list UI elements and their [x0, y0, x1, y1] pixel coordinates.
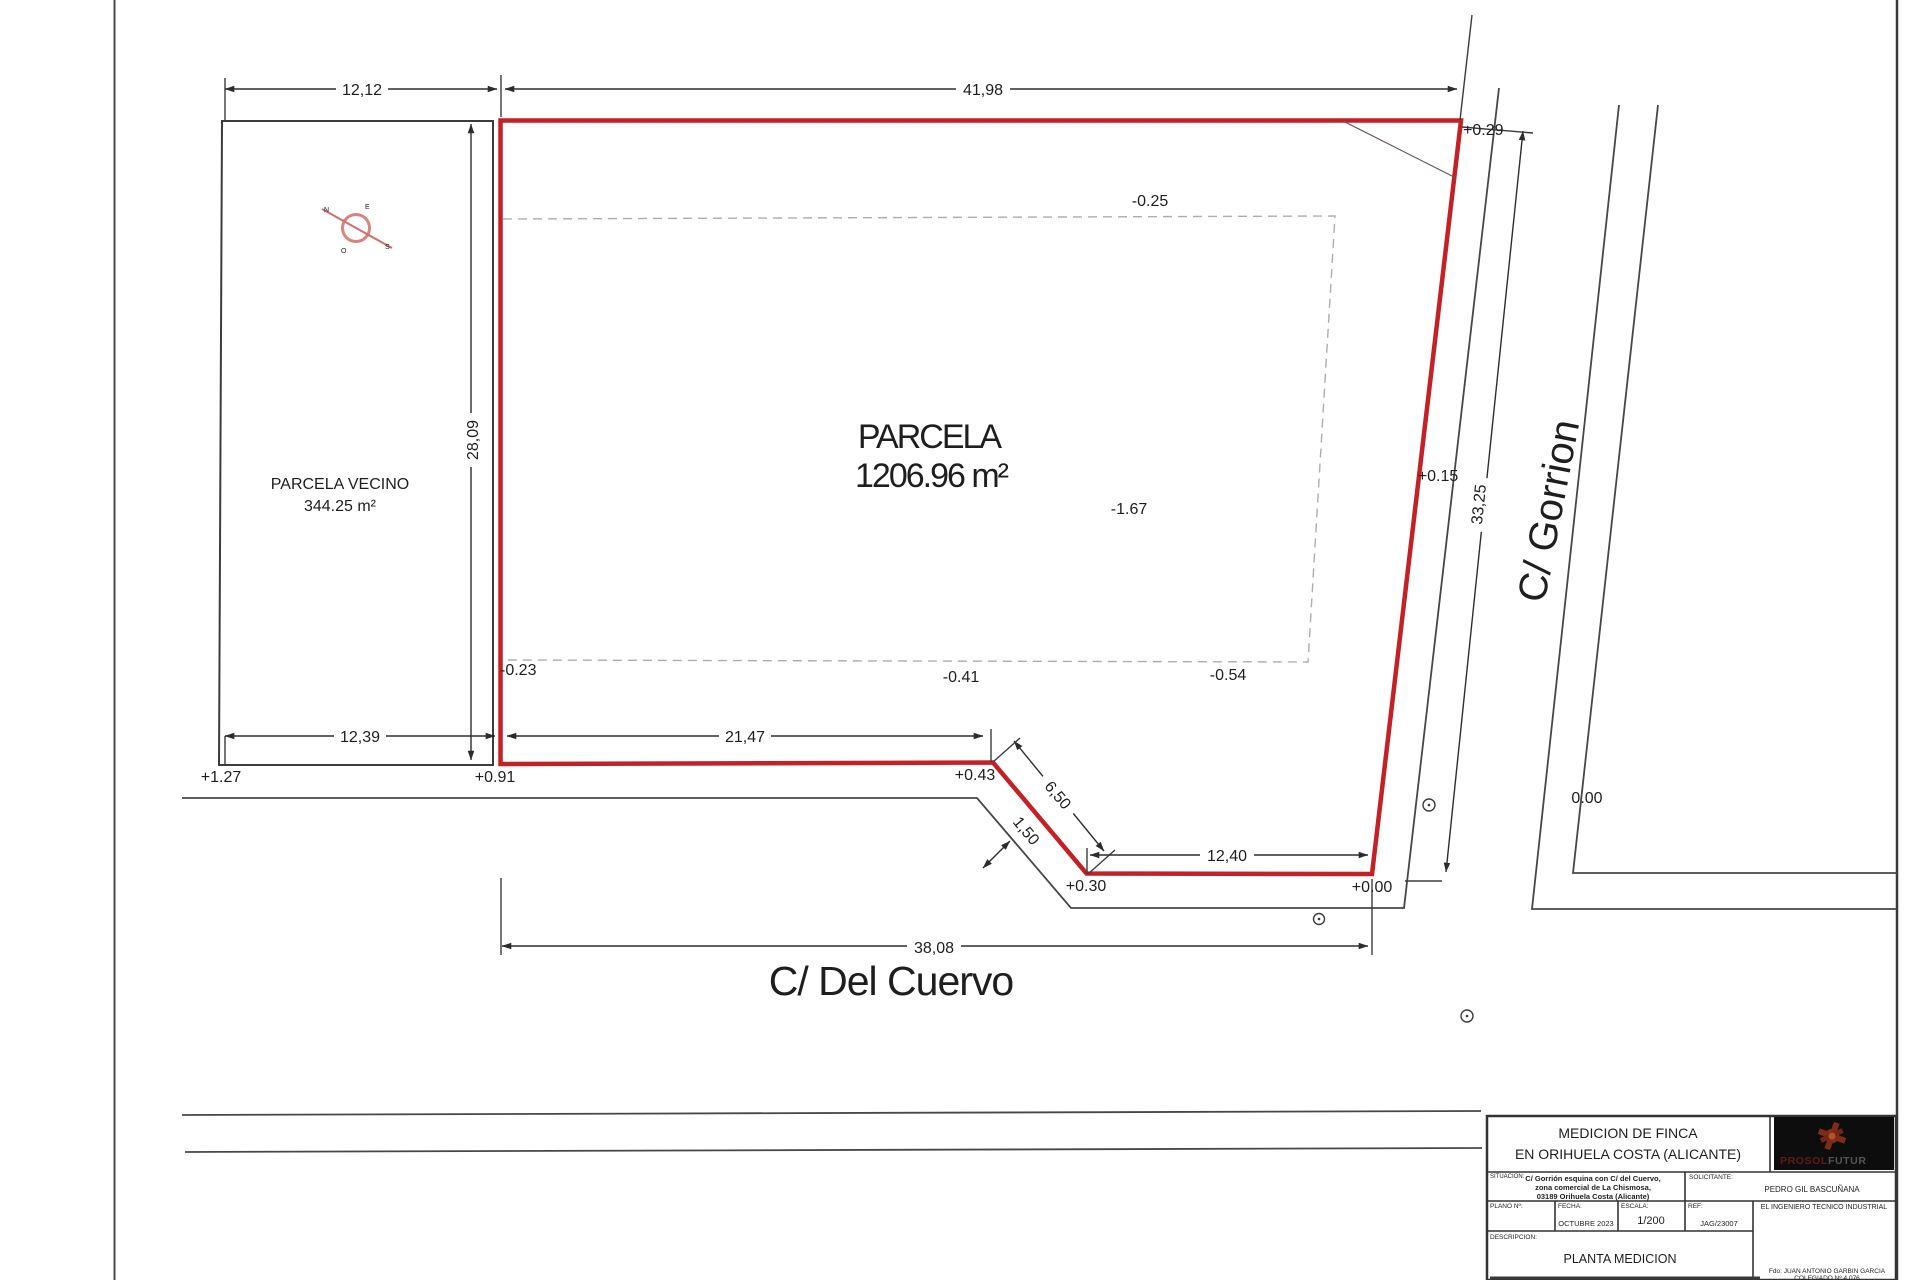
svg-text:+1.27: +1.27 [201, 769, 242, 786]
svg-text:PROSOLFUTUR: PROSOLFUTUR [1780, 1155, 1867, 1167]
svg-text:JAG/23007: JAG/23007 [1700, 1219, 1738, 1228]
svg-text:SOLICITANTE:: SOLICITANTE: [1689, 1174, 1733, 1181]
svg-text:C/ Gorrion: C/ Gorrion [1510, 416, 1588, 606]
svg-text:12,12: 12,12 [342, 82, 382, 99]
svg-text:38,08: 38,08 [914, 940, 954, 957]
svg-text:0.00: 0.00 [1571, 790, 1602, 807]
svg-text:+0.00: +0.00 [1352, 879, 1393, 896]
svg-text:ESCALA:: ESCALA: [1621, 1203, 1649, 1210]
svg-text:FECHA:: FECHA: [1558, 1203, 1582, 1210]
svg-text:-1.67: -1.67 [1111, 501, 1148, 518]
svg-text:-0.23: -0.23 [500, 662, 537, 679]
svg-text:+0.91: +0.91 [475, 769, 516, 786]
svg-text:SITUACION:: SITUACION: [1490, 1174, 1525, 1180]
svg-text:Fdo: JUAN ANTONIO GARBIN GARCI: Fdo: JUAN ANTONIO GARBIN GARCIA [1769, 1268, 1886, 1275]
svg-text:PARCELA VECINO: PARCELA VECINO [271, 476, 409, 493]
svg-text:+0.29: +0.29 [1463, 122, 1504, 139]
svg-text:33,25: 33,25 [1469, 484, 1490, 526]
svg-text:12,40: 12,40 [1207, 848, 1247, 865]
svg-text:1/200: 1/200 [1637, 1215, 1665, 1227]
svg-text:PEDRO GIL BASCUÑANA: PEDRO GIL BASCUÑANA [1764, 1185, 1860, 1194]
svg-text:N: N [324, 207, 329, 214]
svg-text:+0.15: +0.15 [1418, 468, 1459, 485]
svg-text:-0.25: -0.25 [1132, 193, 1169, 210]
svg-text:03189 Orihuela Costa (Alicante: 03189 Orihuela Costa (Alicante) [1537, 1192, 1650, 1201]
svg-text:MEDICION DE FINCA: MEDICION DE FINCA [1558, 1125, 1698, 1141]
svg-text:1206.96 m²: 1206.96 m² [855, 457, 1009, 495]
svg-text:+0.30: +0.30 [1066, 878, 1107, 895]
svg-text:EN ORIHUELA COSTA (ALICANTE): EN ORIHUELA COSTA (ALICANTE) [1515, 1146, 1741, 1162]
svg-text:S: S [385, 244, 390, 251]
svg-text:DESCRIPCION:: DESCRIPCION: [1490, 1234, 1537, 1241]
svg-text:-0.54: -0.54 [1210, 667, 1247, 684]
svg-text:41,98: 41,98 [963, 82, 1003, 99]
svg-text:21,47: 21,47 [725, 729, 765, 746]
svg-text:PLANTA MEDICION: PLANTA MEDICION [1564, 1252, 1677, 1266]
svg-text:PARCELA: PARCELA [858, 418, 1003, 456]
svg-text:E: E [365, 204, 370, 211]
svg-text:+0.43: +0.43 [955, 767, 996, 784]
svg-text:COLEGIADO Nº 4.076: COLEGIADO Nº 4.076 [1794, 1275, 1860, 1280]
svg-text:PLANO Nº:: PLANO Nº: [1490, 1203, 1523, 1210]
svg-text:C/ Del Cuervo: C/ Del Cuervo [769, 958, 1014, 1004]
svg-text:28,09: 28,09 [465, 420, 482, 460]
svg-text:C/ Gorrión esquina con C/ del: C/ Gorrión esquina con C/ del Cuervo, [1525, 1174, 1660, 1183]
svg-text:OCTUBRE 2023: OCTUBRE 2023 [1558, 1219, 1613, 1228]
svg-text:O: O [341, 248, 347, 255]
svg-text:EL INGENIERO TECNICO INDUSTRIA: EL INGENIERO TECNICO INDUSTRIAL [1761, 1204, 1888, 1211]
svg-text:1,50: 1,50 [1009, 814, 1042, 849]
svg-text:344.25 m²: 344.25 m² [304, 498, 377, 515]
svg-text:zona comercial de La Chismosa,: zona comercial de La Chismosa, [1535, 1183, 1651, 1192]
svg-text:12,39: 12,39 [340, 729, 380, 746]
svg-text:REF:: REF: [1688, 1203, 1703, 1210]
svg-text:-0.41: -0.41 [943, 669, 980, 686]
